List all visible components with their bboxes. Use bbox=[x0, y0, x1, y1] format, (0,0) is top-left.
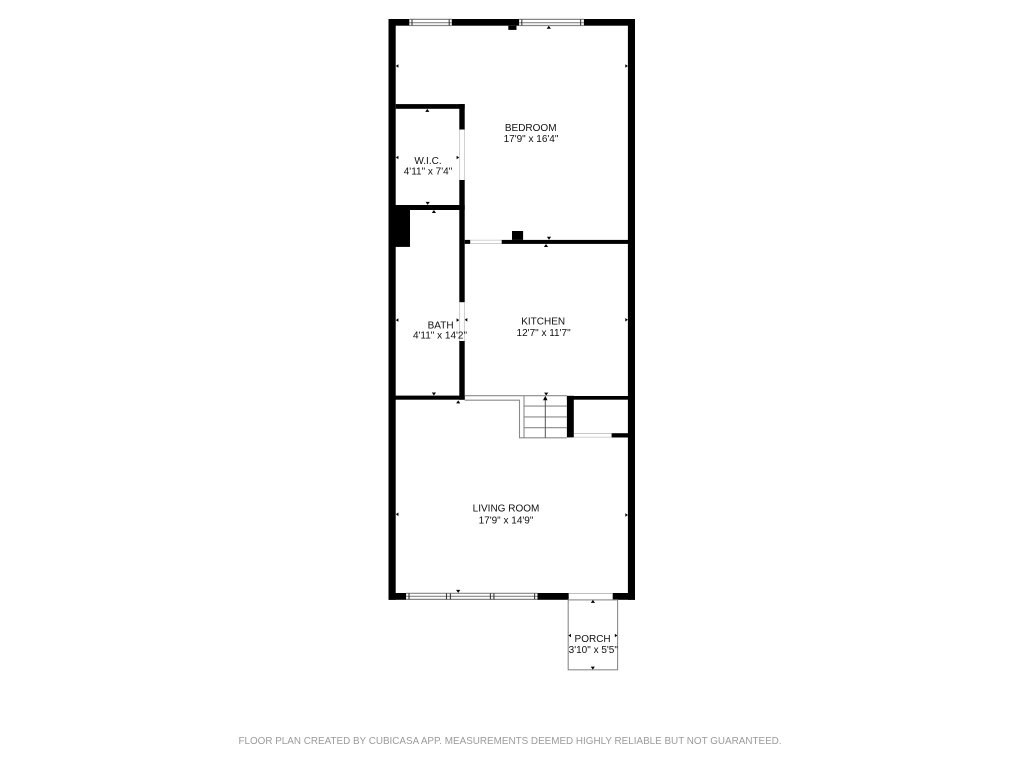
svg-text:KITCHEN: KITCHEN bbox=[521, 317, 565, 328]
svg-text:3'10" x 5'5": 3'10" x 5'5" bbox=[569, 645, 619, 656]
svg-text:LIVING ROOM: LIVING ROOM bbox=[473, 504, 540, 515]
svg-text:12'7" x 11'7": 12'7" x 11'7" bbox=[517, 328, 572, 339]
svg-text:17'9" x 16'4": 17'9" x 16'4" bbox=[504, 134, 559, 145]
svg-text:17'9" x 14'9": 17'9" x 14'9" bbox=[479, 515, 534, 526]
svg-text:PORCH: PORCH bbox=[575, 634, 611, 645]
svg-text:4'11" x 14'2": 4'11" x 14'2" bbox=[413, 331, 468, 342]
svg-text:BEDROOM: BEDROOM bbox=[505, 123, 557, 134]
svg-text:FLOOR PLAN CREATED BY CUBICASA: FLOOR PLAN CREATED BY CUBICASA APP. MEAS… bbox=[238, 736, 781, 747]
svg-text:4'11" x 7'4": 4'11" x 7'4" bbox=[404, 166, 453, 177]
